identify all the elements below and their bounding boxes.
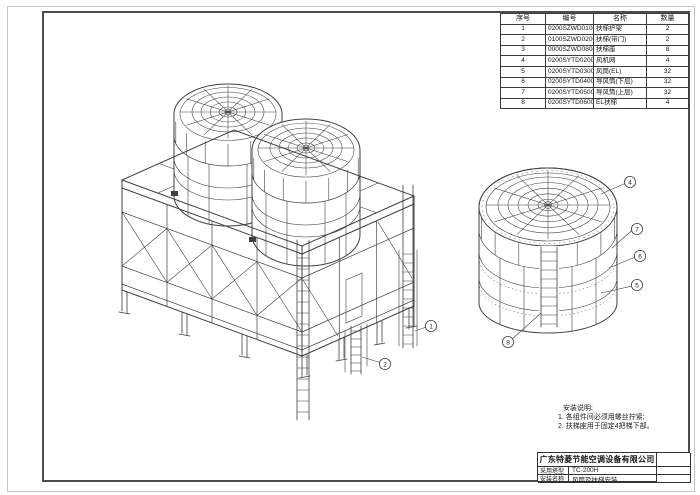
table-row: 7 0200SYTD0500 导风筒(上层) 32 bbox=[501, 88, 689, 99]
title-block-empty-cell bbox=[657, 467, 691, 475]
cell-qty: 2 bbox=[647, 24, 689, 35]
title-block-empty-cell bbox=[657, 453, 691, 467]
callout-1: 1 bbox=[415, 320, 437, 331]
company-name: 广东特菱节能空调设备有限公司 bbox=[538, 453, 657, 467]
detail-ladder bbox=[539, 246, 559, 327]
callout-number: 2 bbox=[383, 361, 387, 368]
callout-number: 5 bbox=[635, 282, 639, 289]
cell-name: 导风筒(下层) bbox=[594, 77, 647, 88]
table-row: 6 0200SYTD0400 导风筒(下层) 32 bbox=[501, 77, 689, 88]
table-row: 1 0200SZWD0100 扶梯护架 2 bbox=[501, 24, 689, 35]
cell-index: 8 bbox=[501, 98, 546, 109]
install-name-label: 安装名称 bbox=[538, 475, 569, 483]
cell-name: 扶梯座 bbox=[594, 45, 647, 56]
drawing-sheet: 1 2 bbox=[0, 0, 700, 495]
cell-index: 4 bbox=[501, 56, 546, 67]
table-header-row: 序号 编号 名称 数量 bbox=[501, 14, 689, 25]
table-row: 8 0200SYTD0600 EL扶梯 4 bbox=[501, 98, 689, 109]
cell-index: 1 bbox=[501, 24, 546, 35]
header-qty: 数量 bbox=[647, 14, 689, 25]
notes-line: 2. 扶梯座用于固定4把梯下部。 bbox=[558, 422, 654, 431]
tower-model-label: 采用塔型 bbox=[538, 467, 569, 475]
callout-number: 4 bbox=[628, 179, 632, 186]
header-code: 编号 bbox=[546, 14, 594, 25]
callout-2: 2 bbox=[362, 357, 391, 370]
cell-name: 扶梯(带门) bbox=[594, 35, 647, 46]
cell-code: 0100SZWD0200 bbox=[546, 35, 594, 46]
notes-line: 1. 各组件间必须用螺丝拧紧; bbox=[558, 413, 654, 422]
install-name-value: 风筒及扶梯安装 bbox=[569, 475, 657, 483]
cell-name: 风筒(EL) bbox=[594, 66, 647, 77]
title-block-empty-cell bbox=[657, 475, 691, 483]
parts-table: 序号 编号 名称 数量 1 0200SZWD0100 扶梯护架 2 2 0100… bbox=[500, 13, 689, 109]
tower-model-value: TC-200H bbox=[569, 467, 657, 475]
cell-code: 0200SYTD0500 bbox=[546, 88, 594, 99]
header-name: 名称 bbox=[594, 14, 647, 25]
cell-qty: 4 bbox=[647, 98, 689, 109]
cell-name: 导风筒(上层) bbox=[594, 88, 647, 99]
cell-qty: 8 bbox=[647, 45, 689, 56]
cell-qty: 32 bbox=[647, 77, 689, 88]
cell-index: 6 bbox=[501, 77, 546, 88]
cell-code: 0200SYTD0600 bbox=[546, 98, 594, 109]
table-row: 5 0200SYTD0300 风筒(EL) 32 bbox=[501, 66, 689, 77]
cell-code: 0200SYTD0400 bbox=[546, 77, 594, 88]
tower-legs bbox=[119, 290, 417, 378]
cell-code: 0200SZWD0100 bbox=[546, 24, 594, 35]
cell-code: 0200SYTD0300 bbox=[546, 66, 594, 77]
cell-index: 3 bbox=[501, 45, 546, 56]
cell-qty: 32 bbox=[647, 88, 689, 99]
callout-number: 6 bbox=[638, 253, 642, 260]
title-block: 广东特菱节能空调设备有限公司 采用塔型 TC-200H 安装名称 风筒及扶梯安装 bbox=[537, 452, 690, 482]
header-index: 序号 bbox=[501, 14, 546, 25]
cell-name: EL扶梯 bbox=[594, 98, 647, 109]
access-door bbox=[346, 273, 362, 323]
cell-code: 0000SZWD0800 bbox=[546, 45, 594, 56]
cell-index: 5 bbox=[501, 66, 546, 77]
cell-code: 0200SYTD0200 bbox=[546, 56, 594, 67]
detail-cylinder-group: 4 7 6 5 bbox=[479, 168, 646, 348]
cell-qty: 32 bbox=[647, 66, 689, 77]
callout-number: 8 bbox=[506, 339, 510, 346]
table-row: 3 0000SZWD0800 扶梯座 8 bbox=[501, 45, 689, 56]
cell-qty: 2 bbox=[647, 35, 689, 46]
table-row: 2 0100SZWD0200 扶梯(带门) 2 bbox=[501, 35, 689, 46]
main-tower-group: 1 2 bbox=[119, 84, 437, 420]
notes-title: 安装说明: bbox=[558, 404, 654, 413]
table-row: 4 0200SYTD0200 风机网 4 bbox=[501, 56, 689, 67]
cell-name: 风机网 bbox=[594, 56, 647, 67]
cell-index: 7 bbox=[501, 88, 546, 99]
cell-name: 扶梯护架 bbox=[594, 24, 647, 35]
install-notes: 安装说明: 1. 各组件间必须用螺丝拧紧; 2. 扶梯座用于固定4把梯下部。 bbox=[558, 404, 654, 431]
cell-index: 2 bbox=[501, 35, 546, 46]
callout-number: 1 bbox=[429, 323, 433, 330]
cell-qty: 4 bbox=[647, 56, 689, 67]
callout-number: 7 bbox=[635, 226, 639, 233]
